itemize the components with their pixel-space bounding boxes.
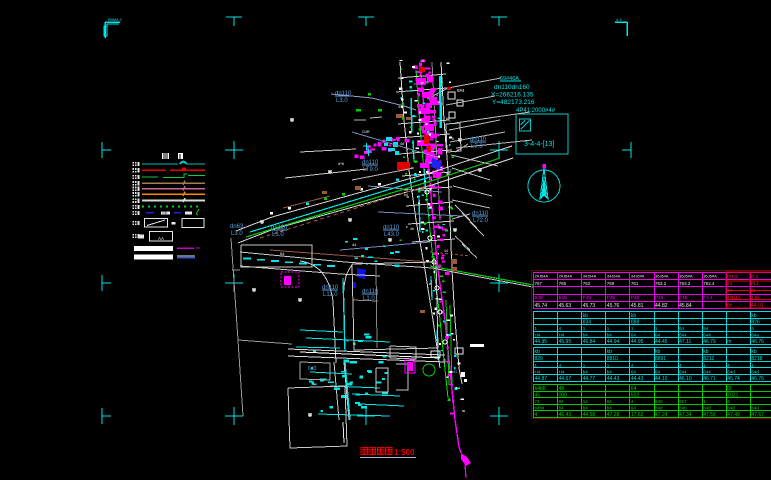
svg-text:b4b4: b4b4	[535, 406, 546, 411]
svg-text:Y=482173.216: Y=482173.216	[492, 99, 535, 106]
svg-text:kb: kb	[535, 349, 541, 355]
svg-text:L11.0: L11.0	[323, 292, 338, 298]
svg-text:64d: 64d	[751, 370, 759, 375]
svg-text:L72.0: L72.0	[473, 218, 489, 224]
svg-text:45.76: 45.76	[607, 303, 620, 309]
svg-text:46.76: 46.76	[751, 376, 764, 382]
svg-text:644: 644	[703, 370, 711, 375]
svg-text:dn110dn160: dn110dn160	[494, 84, 530, 91]
svg-text:14: 14	[583, 399, 589, 404]
svg-text:H4: H4	[535, 370, 541, 375]
svg-text:64: 64	[280, 251, 285, 256]
svg-text:644: 644	[679, 370, 687, 375]
svg-text:34J64A: 34J64A	[583, 274, 597, 279]
svg-text:#*#: #*#	[338, 161, 345, 166]
svg-text:b4: b4	[583, 370, 589, 375]
svg-text:64: 64	[631, 406, 637, 411]
svg-text:940: 940	[655, 399, 663, 404]
svg-text:64: 64	[655, 370, 661, 375]
svg-text:L3.0: L3.0	[231, 231, 243, 237]
svg-text:44.82: 44.82	[655, 303, 668, 309]
svg-text:44.01: 44.01	[751, 303, 764, 309]
svg-text:4: 4	[535, 412, 538, 418]
svg-text:45.63: 45.63	[559, 303, 572, 309]
svg-text:2.56: 2.56	[751, 295, 760, 300]
svg-text:34J64A: 34J64A	[607, 274, 621, 279]
svg-text:46.71: 46.71	[703, 376, 716, 382]
svg-text:45.95: 45.95	[559, 339, 572, 345]
svg-text:8212: 8212	[703, 356, 714, 362]
svg-text:kb: kb	[751, 313, 757, 319]
svg-text:b4b8: b4b8	[535, 386, 546, 392]
svg-text:kb: kb	[631, 313, 637, 319]
svg-text:6: 6	[452, 137, 454, 141]
svg-text:94: 94	[559, 399, 565, 404]
svg-text:44.94: 44.94	[607, 339, 620, 345]
svg-text:L7.0: L7.0	[471, 144, 483, 150]
svg-text:B4B: B4B	[559, 295, 568, 300]
svg-text:4b: 4b	[410, 227, 414, 231]
svg-text:44.45: 44.45	[655, 339, 668, 345]
svg-text:44.95: 44.95	[535, 339, 548, 345]
svg-text:763.2: 763.2	[679, 281, 691, 286]
svg-text:4: 4	[436, 93, 438, 97]
svg-text:dn63: dn63	[230, 224, 244, 230]
svg-text:46.10: 46.10	[679, 376, 692, 382]
svg-text:34J6#A: 34J6#A	[631, 274, 645, 279]
svg-text:b4: b4	[583, 333, 589, 338]
svg-text:46.76: 46.76	[751, 339, 764, 345]
svg-text:P4B: P4B	[607, 295, 616, 300]
svg-text:45.74: 45.74	[535, 303, 548, 309]
svg-text:01: 01	[751, 288, 757, 293]
svg-text:b4: b4	[404, 193, 408, 197]
svg-text:6f: 6f	[727, 386, 732, 392]
svg-text:762: 762	[583, 281, 591, 286]
svg-text:b4: b4	[607, 406, 613, 411]
svg-text:P4.4: P4.4	[703, 295, 713, 300]
svg-text:44.43: 44.43	[607, 376, 620, 382]
svg-text:b4d: b4d	[727, 406, 735, 411]
svg-text:P4B: P4B	[583, 295, 592, 300]
svg-text:kb: kb	[583, 313, 589, 319]
svg-text:44: 44	[444, 249, 448, 253]
svg-text:b4: b4	[559, 406, 565, 411]
svg-text:36J6#A: 36J6#A	[703, 274, 717, 279]
svg-text:765: 765	[559, 281, 567, 286]
svg-text:47.49: 47.49	[727, 412, 740, 418]
svg-text:4.3: 4.3	[616, 17, 622, 22]
svg-text:R-1: R-1	[751, 274, 759, 279]
svg-text:45.74: 45.74	[727, 376, 740, 382]
svg-text:44.87: 44.87	[535, 376, 548, 382]
svg-text:64: 64	[631, 370, 637, 375]
svg-text:8810: 8810	[607, 356, 618, 362]
svg-text:L3.0: L3.0	[272, 232, 284, 238]
svg-text:64: 64	[631, 333, 637, 338]
svg-text:888: 888	[631, 319, 640, 325]
svg-text:644: 644	[703, 333, 711, 338]
svg-text:64a: 64a	[751, 333, 759, 338]
svg-text:767: 767	[535, 281, 543, 286]
svg-text:44.10: 44.10	[655, 376, 668, 382]
svg-text:44.95: 44.95	[631, 339, 644, 345]
svg-text:502: 502	[631, 392, 640, 398]
svg-text:6d3: 6d3	[308, 366, 317, 372]
svg-text:AA: AA	[158, 236, 164, 241]
svg-text:b4d: b4d	[655, 406, 663, 411]
svg-text:44.67: 44.67	[559, 376, 572, 382]
svg-text:36J6#A: 36J6#A	[679, 274, 693, 279]
svg-text:48: 48	[559, 386, 565, 392]
svg-text:36J64A: 36J64A	[655, 274, 669, 279]
svg-text:4#B4A: 4#B4A	[727, 295, 741, 300]
svg-text:3-4-4-[13]: 3-4-4-[13]	[524, 141, 554, 148]
svg-text:769: 769	[607, 281, 615, 286]
svg-text:b4: b4	[607, 370, 613, 375]
svg-text:47.67: 47.67	[751, 412, 764, 418]
svg-text:d5: d5	[453, 369, 458, 374]
svg-text:17.62: 17.62	[631, 412, 644, 418]
svg-text:GB: GB	[162, 211, 168, 215]
svg-text:PH02: PH02	[727, 274, 739, 279]
svg-text:44.77: 44.77	[583, 376, 596, 382]
svg-text:P4B: P4B	[679, 295, 688, 300]
svg-text:761: 761	[631, 281, 639, 286]
svg-text:B9M4.3: B9M4.3	[108, 17, 123, 22]
svg-text:47.24: 47.24	[655, 412, 668, 418]
svg-text:46.79: 46.79	[703, 339, 716, 345]
svg-text:L1.0: L1.0	[363, 296, 375, 302]
svg-text:kb: kb	[655, 349, 661, 355]
svg-text:46.84: 46.84	[583, 339, 596, 345]
svg-text:000: 000	[559, 392, 568, 398]
svg-text:4d: 4d	[400, 142, 404, 146]
svg-text:P4B: P4B	[655, 295, 664, 300]
svg-text:24: 24	[727, 281, 733, 286]
svg-text:b4: b4	[583, 406, 589, 411]
svg-text:47.34: 47.34	[679, 412, 692, 418]
svg-text:b4d: b4d	[703, 406, 711, 411]
svg-text:34: 34	[727, 288, 733, 293]
svg-text:6#4: 6#4	[457, 88, 465, 93]
svg-text:64: 64	[607, 399, 613, 404]
svg-text:967: 967	[679, 399, 687, 404]
svg-text:44: 44	[448, 205, 452, 209]
svg-text:B4B: B4B	[535, 295, 544, 300]
svg-text:826: 826	[751, 319, 760, 325]
svg-text:kb: kb	[751, 349, 757, 355]
svg-text:47.11: 47.11	[679, 339, 691, 345]
svg-text:64: 64	[655, 333, 661, 338]
svg-text:LT9.0: LT9.0	[363, 167, 379, 173]
svg-text:kb: kb	[607, 349, 613, 355]
svg-text:8218: 8218	[751, 356, 762, 362]
svg-text:47.59: 47.59	[703, 412, 716, 418]
svg-text:64: 64	[679, 326, 685, 331]
svg-text:644: 644	[679, 333, 687, 338]
svg-text:45.81: 45.81	[631, 303, 644, 309]
svg-text:7021: 7021	[727, 392, 738, 398]
svg-text:H4: H4	[559, 370, 565, 375]
svg-text:94: 94	[703, 326, 709, 331]
svg-text:b4d: b4d	[751, 406, 759, 411]
svg-text:74: 74	[535, 399, 541, 404]
svg-text:2#J64A: 2#J64A	[535, 274, 549, 279]
svg-text:CUR: CUR	[362, 130, 370, 134]
svg-text:45.84: 45.84	[679, 303, 692, 309]
svg-text:44: 44	[352, 242, 357, 247]
svg-text:PL1: PL1	[751, 281, 760, 286]
svg-text:834: 834	[583, 319, 592, 325]
svg-text:1:500: 1:500	[394, 448, 415, 457]
svg-text:H4: H4	[559, 333, 565, 338]
svg-text:H4: H4	[535, 333, 541, 338]
svg-text:46.43: 46.43	[559, 412, 572, 418]
svg-text:44: 44	[420, 58, 425, 63]
svg-text:8891: 8891	[655, 356, 666, 362]
svg-text:X=266216.135: X=266216.135	[491, 92, 534, 99]
svg-text:L3.0: L3.0	[336, 98, 348, 104]
svg-text:45: 45	[535, 392, 541, 398]
svg-text:47.28: 47.28	[607, 412, 620, 418]
svg-text:kb: kb	[703, 349, 709, 355]
svg-text:8#: 8#	[727, 303, 733, 308]
svg-text:P4B: P4B	[631, 295, 640, 300]
svg-text:44.43: 44.43	[631, 376, 644, 382]
svg-text:45.73: 45.73	[583, 303, 596, 309]
svg-text:829: 829	[535, 356, 544, 362]
svg-text:64d: 64d	[727, 370, 735, 375]
svg-text:44.58: 44.58	[583, 412, 596, 418]
svg-text:b4b: b4b	[679, 406, 687, 411]
svg-text:b4: b4	[607, 333, 613, 338]
svg-text:2#J64A: 2#J64A	[559, 274, 573, 279]
svg-text:762.4: 762.4	[703, 281, 715, 286]
svg-text:763.2: 763.2	[655, 281, 667, 286]
svg-text:64: 64	[631, 386, 637, 392]
svg-text:m: m	[727, 339, 731, 345]
svg-text:L43.0: L43.0	[384, 232, 400, 238]
